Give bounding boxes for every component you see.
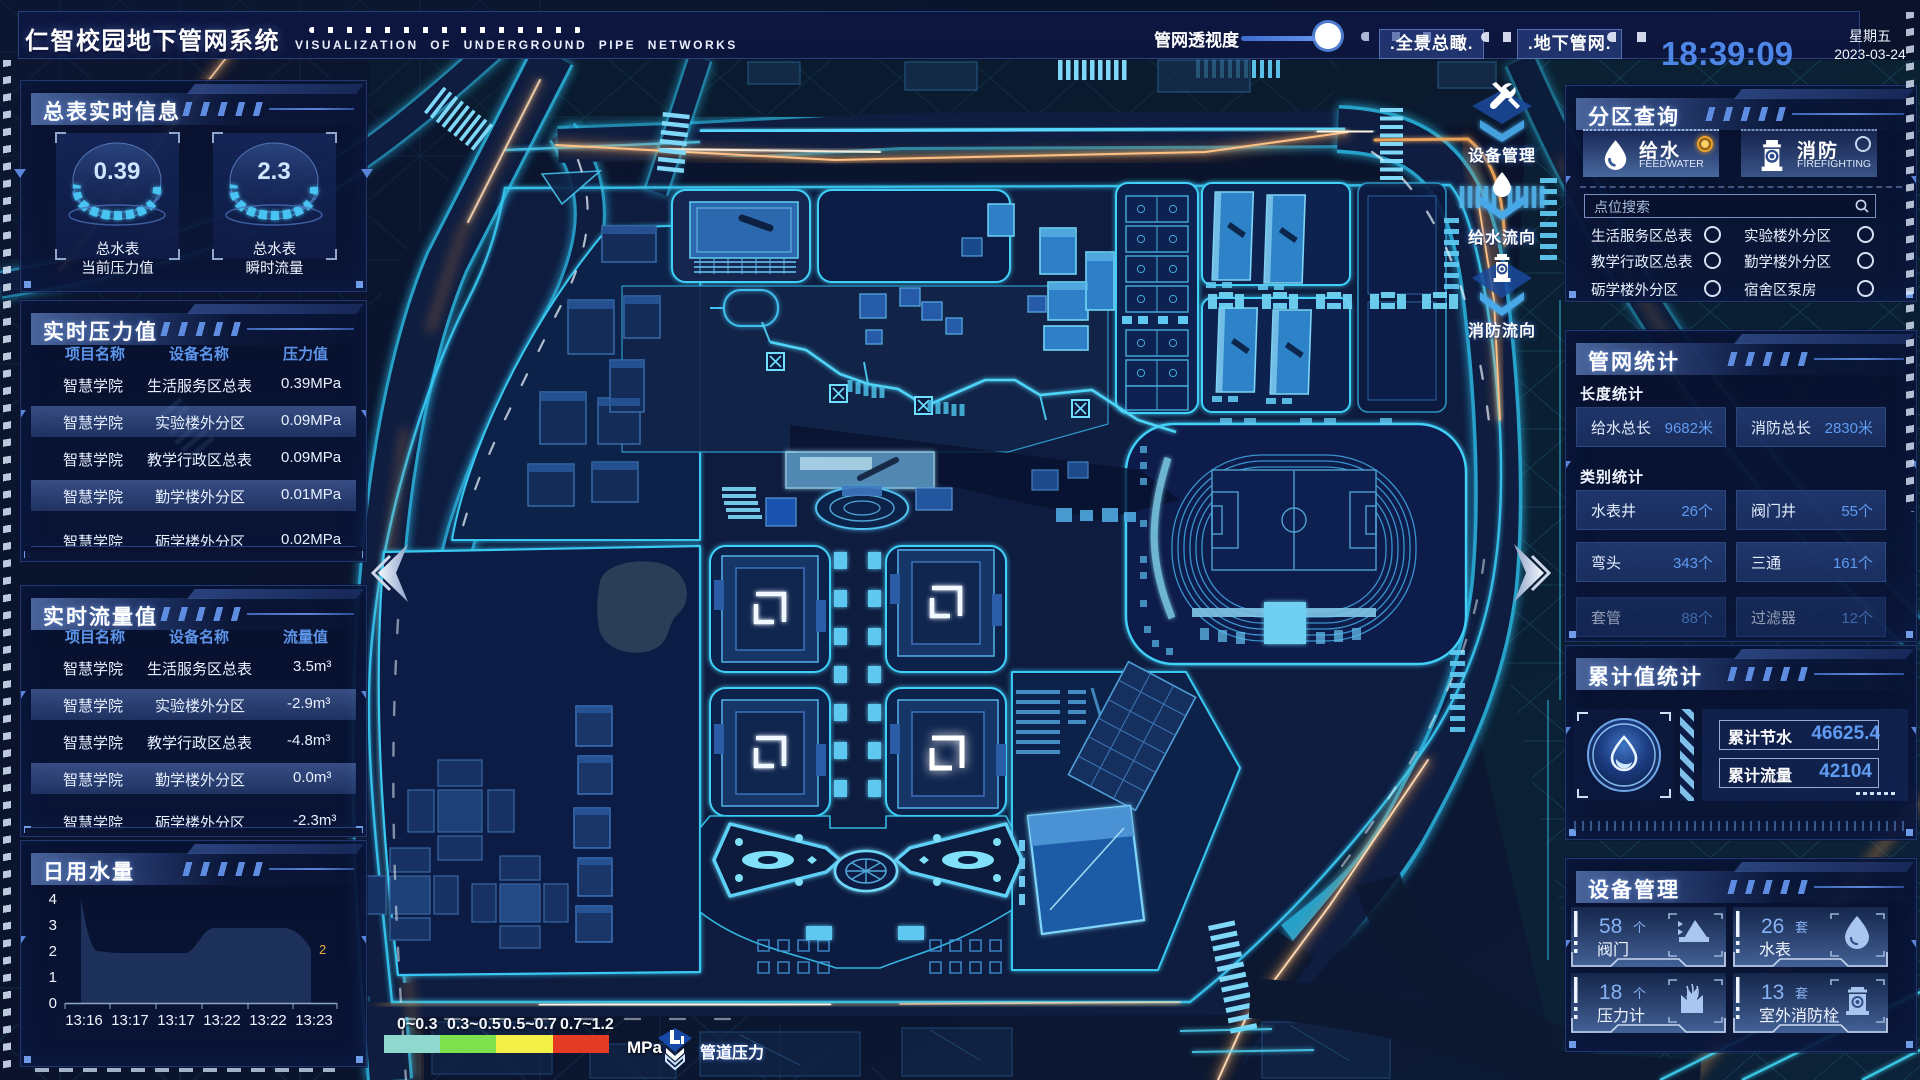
svg-text:个: 个 bbox=[1633, 920, 1646, 935]
svg-text:13:16: 13:16 bbox=[65, 1012, 103, 1029]
svg-text:套: 套 bbox=[1795, 986, 1808, 1001]
svg-text:0.39: 0.39 bbox=[94, 158, 141, 185]
svg-text:2: 2 bbox=[319, 942, 326, 957]
svg-text:58: 58 bbox=[1599, 915, 1622, 938]
svg-text:13: 13 bbox=[1761, 981, 1784, 1004]
svg-text:套: 套 bbox=[1795, 920, 1808, 935]
svg-text:0: 0 bbox=[49, 995, 57, 1012]
svg-text:水表: 水表 bbox=[1759, 941, 1791, 959]
svg-text:3: 3 bbox=[49, 917, 57, 934]
svg-text:13:23: 13:23 bbox=[295, 1012, 333, 1029]
svg-text:13:22: 13:22 bbox=[249, 1012, 287, 1029]
svg-text:13:17: 13:17 bbox=[157, 1012, 195, 1029]
svg-text:2: 2 bbox=[49, 943, 57, 960]
svg-text:室外消防栓: 室外消防栓 bbox=[1759, 1007, 1839, 1025]
svg-text:4: 4 bbox=[49, 891, 57, 908]
svg-text:1: 1 bbox=[49, 969, 57, 986]
svg-text:阀门: 阀门 bbox=[1597, 941, 1629, 959]
svg-text:2.3: 2.3 bbox=[257, 158, 290, 185]
svg-text:个: 个 bbox=[1633, 986, 1646, 1001]
svg-text:13:22: 13:22 bbox=[203, 1012, 241, 1029]
svg-text:压力计: 压力计 bbox=[1597, 1007, 1645, 1025]
svg-text:13:17: 13:17 bbox=[111, 1012, 149, 1029]
svg-text:18: 18 bbox=[1599, 981, 1622, 1004]
svg-text:26: 26 bbox=[1761, 915, 1784, 938]
